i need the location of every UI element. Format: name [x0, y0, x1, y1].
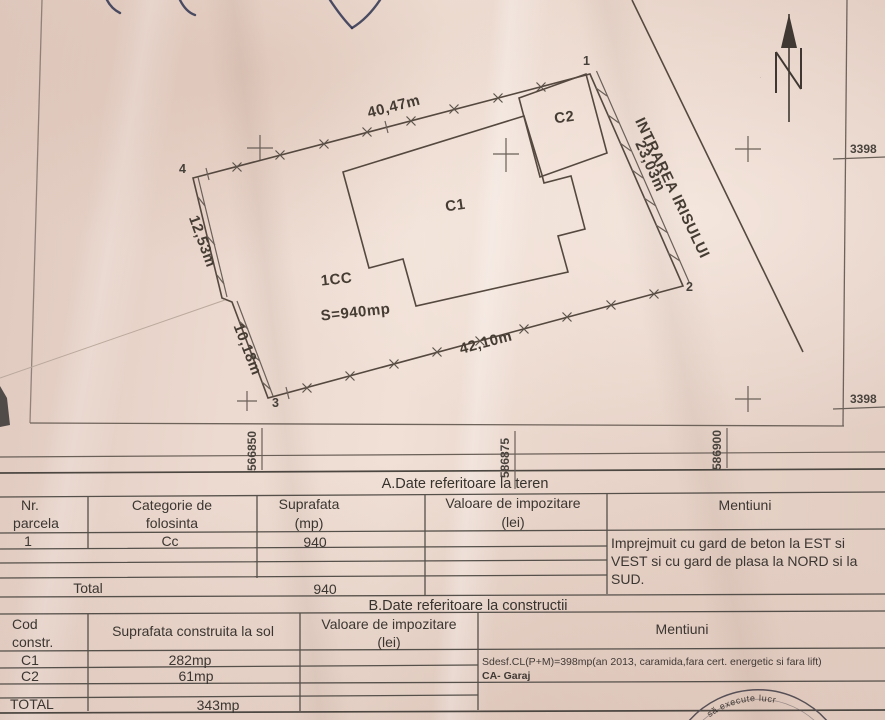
table-a-mentiuni-line2: VEST si cu gard de plasa la NORD si la — [611, 553, 858, 569]
svg-text:să execute lucr: să execute lucr — [705, 693, 777, 719]
table-b-header-mentiuni: Mentiuni — [656, 621, 709, 637]
grid-x-label-3: 586900 — [710, 430, 724, 470]
table-a-header-valoare-2: (lei) — [501, 514, 524, 530]
point-label-2: 2 — [686, 280, 693, 294]
site-plan-drawing: 566850 586875 586900 3398 3398 N — [0, 0, 885, 720]
table-b-total-value: 343mp — [197, 697, 240, 713]
table-a-mentiuni-line3: SUD. — [611, 571, 644, 587]
section-a-title: A.Date referitoare la teren — [382, 476, 549, 492]
table-a-total-value: 940 — [313, 581, 337, 597]
table-a-row1-suprafata: 940 — [303, 534, 327, 550]
table-b-mentiuni-line2: CA- Garaj — [482, 670, 531, 682]
grid-y-label-2: 3398 — [850, 392, 877, 406]
grid-cross-marks — [237, 135, 761, 412]
table-b-total-label: TOTAL — [10, 696, 54, 712]
table-a-header-nr-2: parcela — [13, 515, 59, 531]
dimension-bottom: 42,10m — [458, 327, 514, 357]
table-a-total-label: Total — [73, 580, 103, 596]
north-fence-marks — [206, 83, 546, 181]
north-arrow — [776, 14, 801, 122]
table-a-header-nr-1: Nr. — [21, 497, 39, 513]
table-b-header-suprafata: Suprafata construita la sol — [112, 623, 274, 639]
table-a-row1-nr: 1 — [24, 533, 32, 549]
grid-y-label-1: 3398 — [850, 142, 877, 156]
parcel-zone-label: 1CC — [320, 269, 353, 289]
building-c2-label: C2 — [553, 108, 575, 128]
north-letter: N — [760, 77, 761, 79]
scan-shadow-edge — [0, 386, 10, 427]
table-a-row1-categorie: Cc — [161, 533, 178, 549]
building-c1-label: C1 — [444, 196, 466, 216]
table-a-mentiuni-line1: Imprejmuit cu gard de beton la EST si — [611, 535, 845, 551]
table-b-header-cod-2: constr. — [12, 634, 53, 650]
street-name-label: INTRAREA IRISULUI — [631, 115, 713, 261]
dimension-top: 40,47m — [366, 92, 422, 122]
round-stamp: să execute lucr — [688, 690, 828, 720]
table-a-header-valoare-1: Valoare de impozitare — [445, 495, 580, 511]
table-b-row2-cod: C2 — [21, 668, 39, 684]
point-label-4: 4 — [179, 162, 186, 176]
table-a-header-mentiuni: Mentiuni — [719, 497, 772, 513]
dimension-west-lower: 10,18m — [230, 321, 265, 377]
handwriting-strokes — [107, 0, 380, 28]
table-b-row2-suprafata: 61mp — [178, 668, 213, 684]
point-label-3: 3 — [272, 396, 279, 410]
table-b-header-valoare-2: (lei) — [377, 634, 400, 650]
table-a-header-categorie-1: Categorie de — [132, 497, 212, 513]
table-b-row1-suprafata: 282mp — [169, 652, 212, 668]
grid-x-label-1: 566850 — [245, 431, 259, 471]
table-a-header-categorie-2: folosinta — [146, 515, 198, 531]
scanned-cadastral-document: 566850 586875 586900 3398 3398 N — [0, 0, 885, 720]
grid-x-label-2: 586875 — [498, 438, 512, 478]
table-a-header-suprafata-2: (mp) — [295, 515, 324, 531]
stamp-text: să execute lucr — [705, 693, 777, 719]
parcel-boundary — [193, 74, 683, 398]
dimension-west-upper: 12,53m — [185, 213, 219, 269]
table-b-header-cod-1: Cod — [12, 616, 38, 632]
point-label-1: 1 — [583, 54, 590, 68]
parcel-area-label: S=940mp — [320, 300, 391, 324]
table-b-row1-cod: C1 — [21, 652, 39, 668]
table-a-header-suprafata-1: Suprafata — [279, 496, 340, 512]
table-b-header-valoare-1: Valoare de impozitare — [321, 616, 456, 632]
table-b-mentiuni-line1: Sdesf.CL(P+M)=398mp(an 2013, caramida,fa… — [482, 656, 822, 668]
